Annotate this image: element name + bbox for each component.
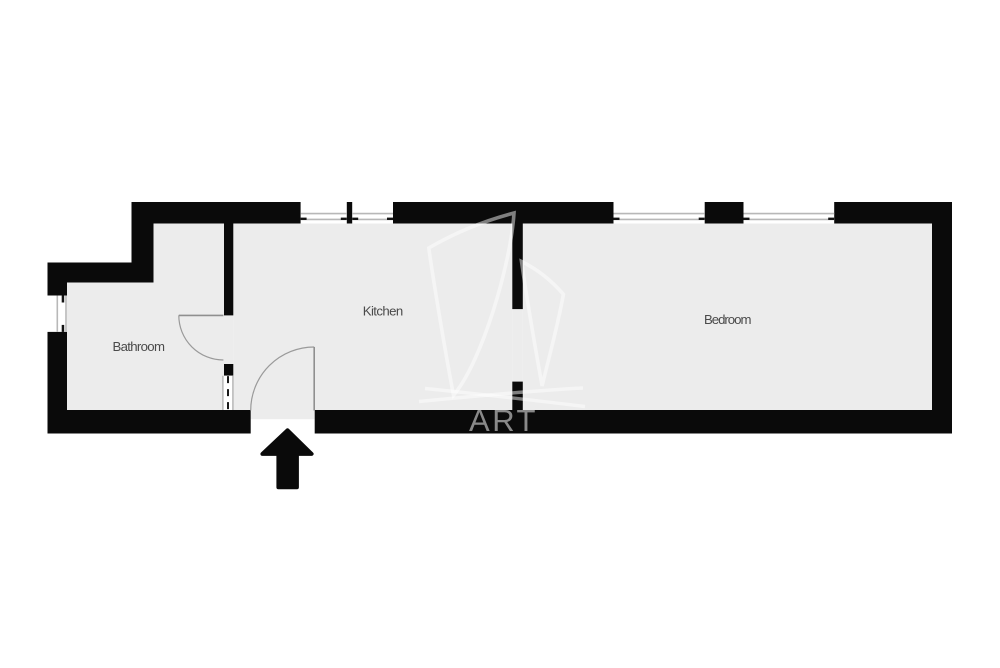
- svg-text:Bedroom: Bedroom: [704, 312, 752, 327]
- svg-text:Bathroom: Bathroom: [112, 339, 165, 354]
- svg-text:ART: ART: [469, 403, 538, 438]
- svg-text:Kitchen: Kitchen: [363, 303, 404, 318]
